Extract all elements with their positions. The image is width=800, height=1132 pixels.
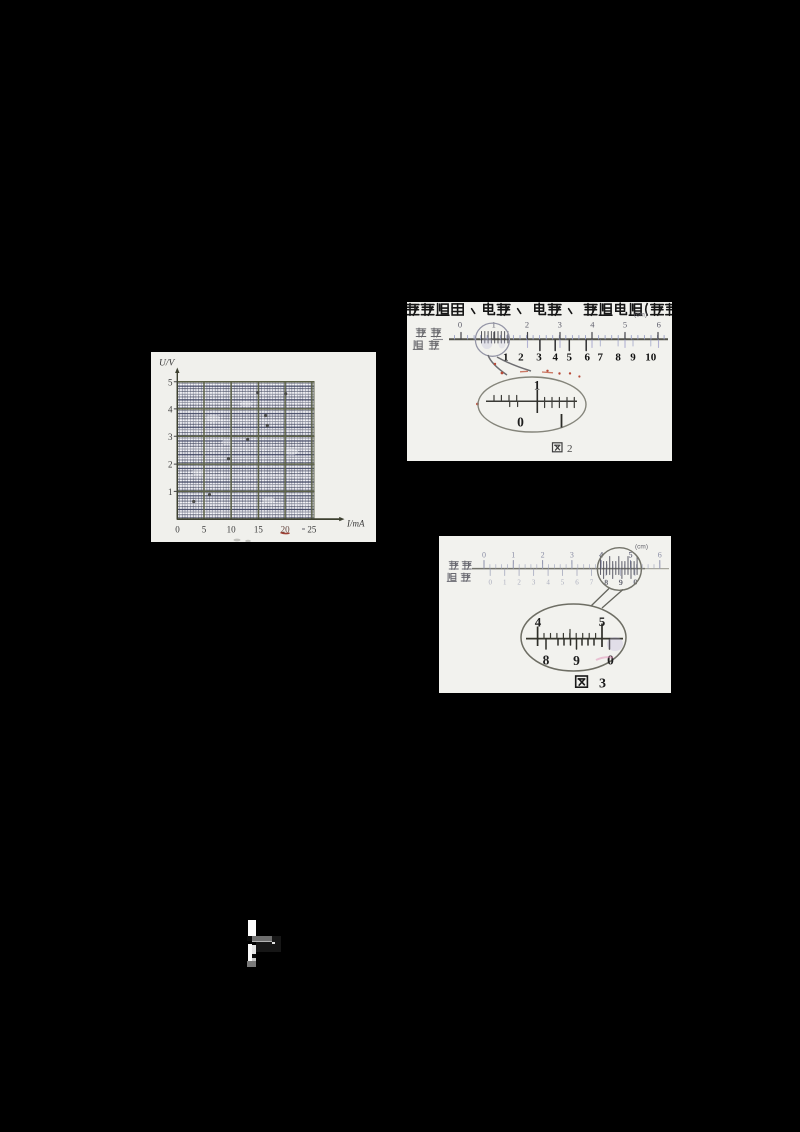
svg-text:2: 2: [567, 443, 573, 455]
svg-text:8: 8: [615, 352, 621, 364]
svg-text:0: 0: [458, 320, 462, 330]
svg-text:2: 2: [525, 320, 529, 330]
svg-text:7: 7: [598, 352, 604, 364]
svg-text:0: 0: [517, 415, 524, 430]
svg-text:3: 3: [558, 320, 562, 330]
svg-text:25: 25: [307, 525, 317, 535]
svg-text:6: 6: [657, 320, 661, 330]
svg-text:2: 2: [518, 352, 524, 364]
svg-text:6: 6: [658, 551, 662, 560]
svg-text:5: 5: [567, 352, 573, 364]
svg-text:0: 0: [488, 579, 492, 587]
svg-text:10: 10: [645, 352, 657, 364]
svg-text:7: 7: [590, 579, 594, 587]
svg-text:1: 1: [511, 551, 515, 560]
svg-text:3: 3: [536, 352, 542, 364]
svg-text:(cm): (cm): [634, 312, 647, 319]
svg-text:6: 6: [575, 579, 579, 587]
svg-text:9: 9: [619, 578, 623, 587]
svg-text:5: 5: [599, 614, 606, 629]
svg-text:5: 5: [623, 320, 627, 330]
svg-text:1: 1: [534, 379, 540, 393]
svg-text:4: 4: [546, 579, 550, 587]
svg-text:4: 4: [590, 320, 595, 330]
svg-text:3: 3: [168, 432, 173, 442]
svg-text:8: 8: [543, 653, 550, 668]
svg-text:0: 0: [175, 525, 180, 535]
svg-text:4: 4: [535, 615, 542, 630]
svg-text:2: 2: [517, 579, 521, 587]
svg-text:1: 1: [492, 320, 496, 330]
svg-text:4: 4: [168, 405, 173, 415]
svg-text:10: 10: [227, 525, 237, 535]
svg-text:2: 2: [541, 551, 545, 560]
svg-text:3: 3: [599, 677, 606, 692]
svg-text:5: 5: [168, 377, 173, 387]
svg-text:0: 0: [482, 551, 486, 560]
svg-text:6: 6: [584, 352, 590, 364]
svg-text:5: 5: [561, 579, 565, 587]
svg-text:2: 2: [168, 460, 173, 470]
svg-text:4: 4: [552, 352, 558, 364]
svg-text:3: 3: [532, 579, 536, 587]
svg-text:9: 9: [573, 653, 580, 668]
svg-text:1: 1: [503, 579, 507, 587]
svg-text:15: 15: [254, 525, 264, 535]
svg-text:(cm): (cm): [635, 544, 648, 551]
svg-text:U/V: U/V: [159, 359, 176, 369]
svg-text:I/mA: I/mA: [346, 519, 365, 529]
svg-text:9: 9: [630, 352, 636, 364]
svg-text:0: 0: [607, 653, 614, 668]
svg-text:3: 3: [570, 551, 574, 560]
svg-text:5: 5: [202, 525, 207, 535]
svg-text:1: 1: [168, 487, 173, 497]
